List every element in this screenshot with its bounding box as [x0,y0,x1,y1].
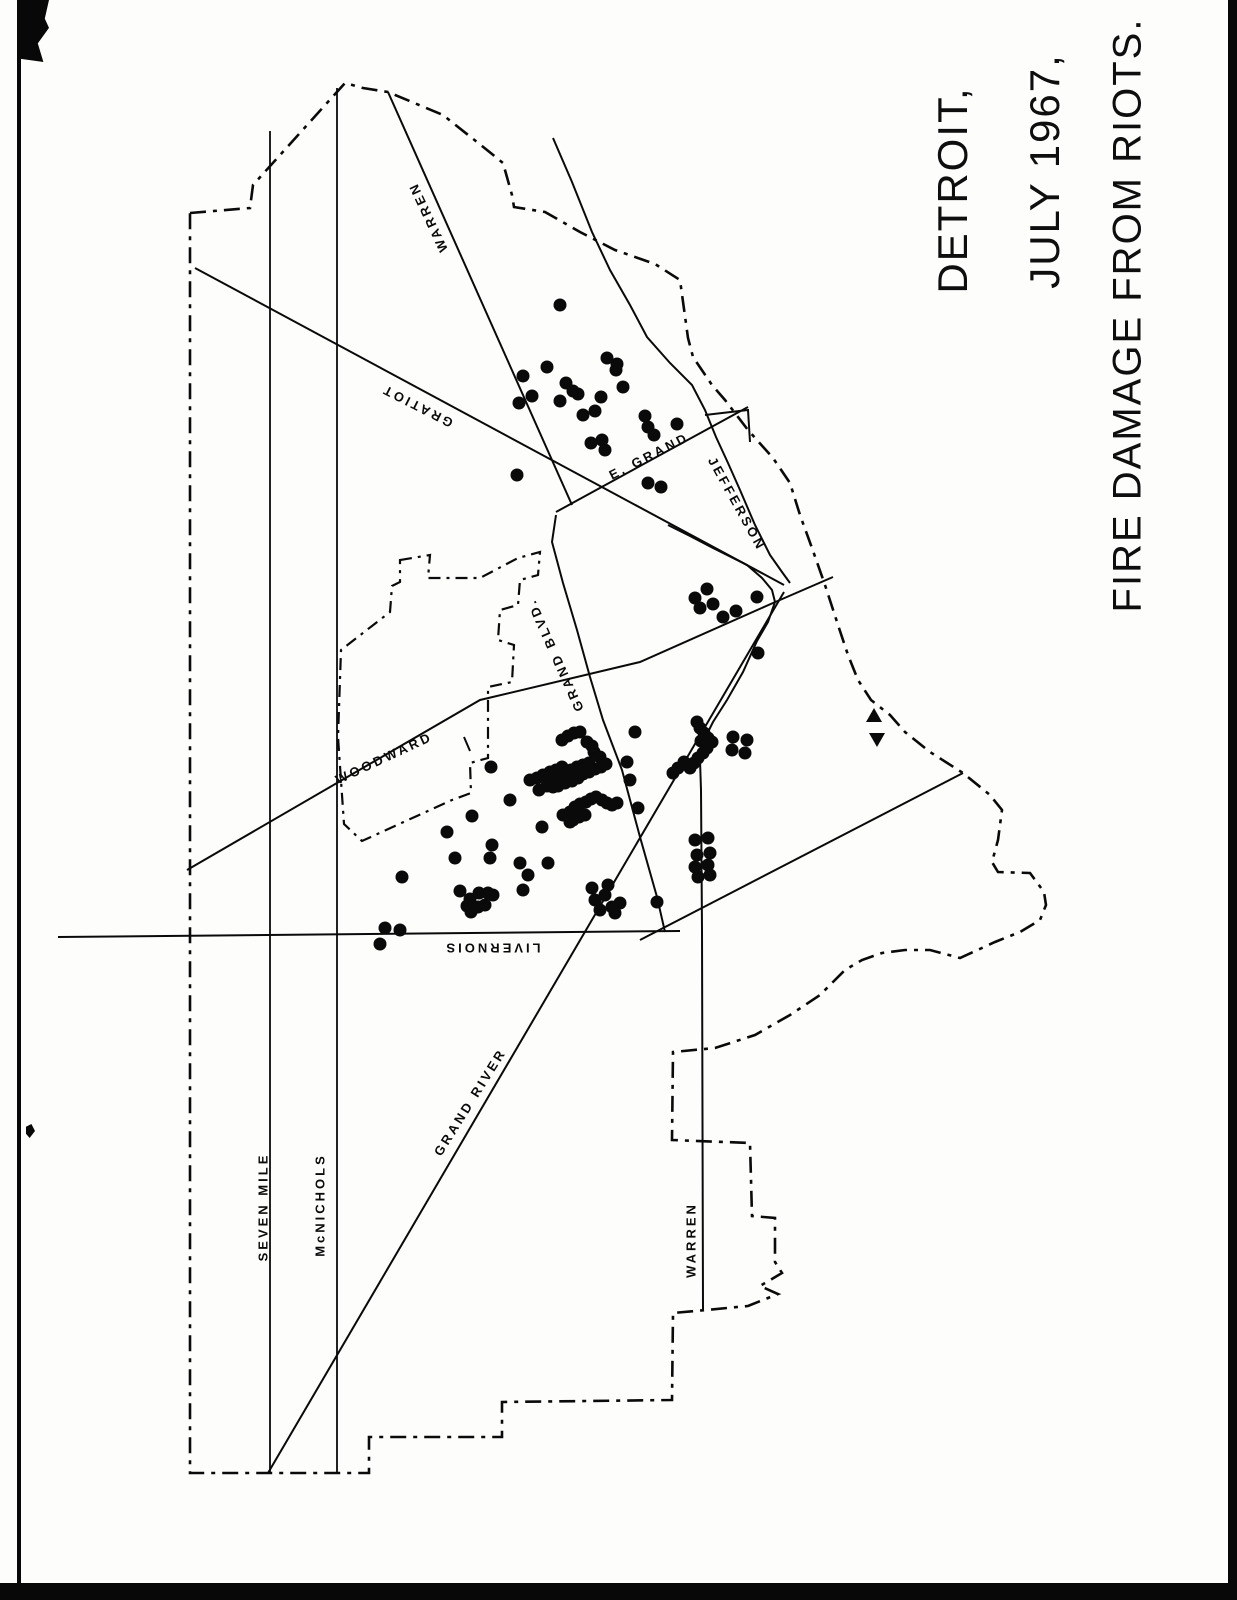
street-label-seven-mile: SEVEN MILE [256,1153,271,1262]
fire-dot [374,938,387,951]
fire-dot [651,896,664,909]
down-triangle-marker [869,733,885,747]
fire-dot [717,611,730,624]
fire-dot [610,364,623,377]
street-line-grand-river [268,592,784,1473]
street-label-livernois: LIVERNOIS [443,941,540,956]
fire-dot [526,390,539,403]
fire-dot [751,591,764,604]
map-title-line-1: DETROIT, [929,86,977,293]
fire-dot [691,849,704,862]
fire-dot [517,884,530,897]
fire-dot [485,761,498,774]
fire-dot [394,924,407,937]
fire-dot [559,777,572,790]
fire-dot [536,821,549,834]
street-line-jefferson [553,138,790,583]
fire-dot [533,784,546,797]
street-line-fort [640,773,963,940]
scan-edge-bottom [0,1583,1237,1600]
map-page: WARRENGRATIOTE. GRANDJEFFERSONWOODWARDGR… [0,0,1237,1600]
fire-dot [554,395,567,408]
fire-dot [704,869,717,882]
fire-dot [702,832,715,845]
fire-dot [586,882,599,895]
up-triangle-marker [866,708,882,722]
fire-dot [542,857,555,870]
fire-dot [487,889,500,902]
street-line-warren-north [388,92,572,505]
fire-dot [522,869,535,882]
street-line-woodward [187,577,833,870]
fire-dot [595,391,608,404]
fire-dot [602,879,615,892]
fire-dot [611,797,624,810]
street-line-livernois [58,931,680,937]
fire-dot [617,381,630,394]
fire-dot [694,602,707,615]
fire-dot [541,361,554,374]
fire-dot [449,852,462,865]
fire-dot [648,429,661,442]
street-label-warren-south: WARREN [684,1202,699,1278]
map-title-line-3: FIRE DAMAGE FROM RIOTS. [1106,18,1151,613]
fire-dot [655,481,668,494]
fire-dot [632,802,645,815]
fire-dot [727,731,740,744]
fire-dot [621,756,634,769]
fire-dot [484,852,497,865]
scan-edge-right [1228,0,1237,1600]
fire-dot [585,437,598,450]
scan-edge-left [17,0,21,1600]
fire-dot [707,598,720,611]
fire-dot [752,647,765,660]
fire-dot [514,857,527,870]
fire-dot [472,901,485,914]
fire-dot [600,758,613,771]
fire-dot [629,726,642,739]
city-boundary [190,83,1046,1473]
fire-dot [624,774,637,787]
fire-dot [689,834,702,847]
fire-dot [667,767,680,780]
fire-dot [504,794,517,807]
fire-dot [589,405,602,418]
fire-dot [701,583,714,596]
fire-dot [704,847,717,860]
fire-dot [396,871,409,884]
map-title-line-2: JULY 1967, [1021,53,1069,289]
fire-dot [554,299,567,312]
street-line-gratiot [195,268,784,585]
fire-dot [517,370,530,383]
fire-dot [730,605,743,618]
fire-dot [671,418,684,431]
fire-dot [572,388,585,401]
fire-dot [511,469,524,482]
fire-dot [609,907,622,920]
woodward-tick [464,737,470,751]
fire-dot [726,744,739,757]
fire-dot [639,410,652,423]
fire-dot [695,735,708,748]
fire-dot [513,397,526,410]
fire-dot [571,804,584,817]
fire-dot [577,409,590,422]
fire-dot [379,922,392,935]
street-line-grand-blvd-west [552,515,665,932]
fire-dot [741,734,754,747]
fire-dot [466,810,479,823]
fire-dot [441,826,454,839]
fire-dot [564,816,577,829]
fire-dot [739,747,752,760]
street-label-mcnichols: McNICHOLS [313,1153,328,1257]
fire-dot [642,477,655,490]
fire-dot [692,871,705,884]
fire-dot [486,839,499,852]
triangle-markers-layer [866,708,885,747]
fire-dot [594,904,607,917]
fire-dot [599,444,612,457]
